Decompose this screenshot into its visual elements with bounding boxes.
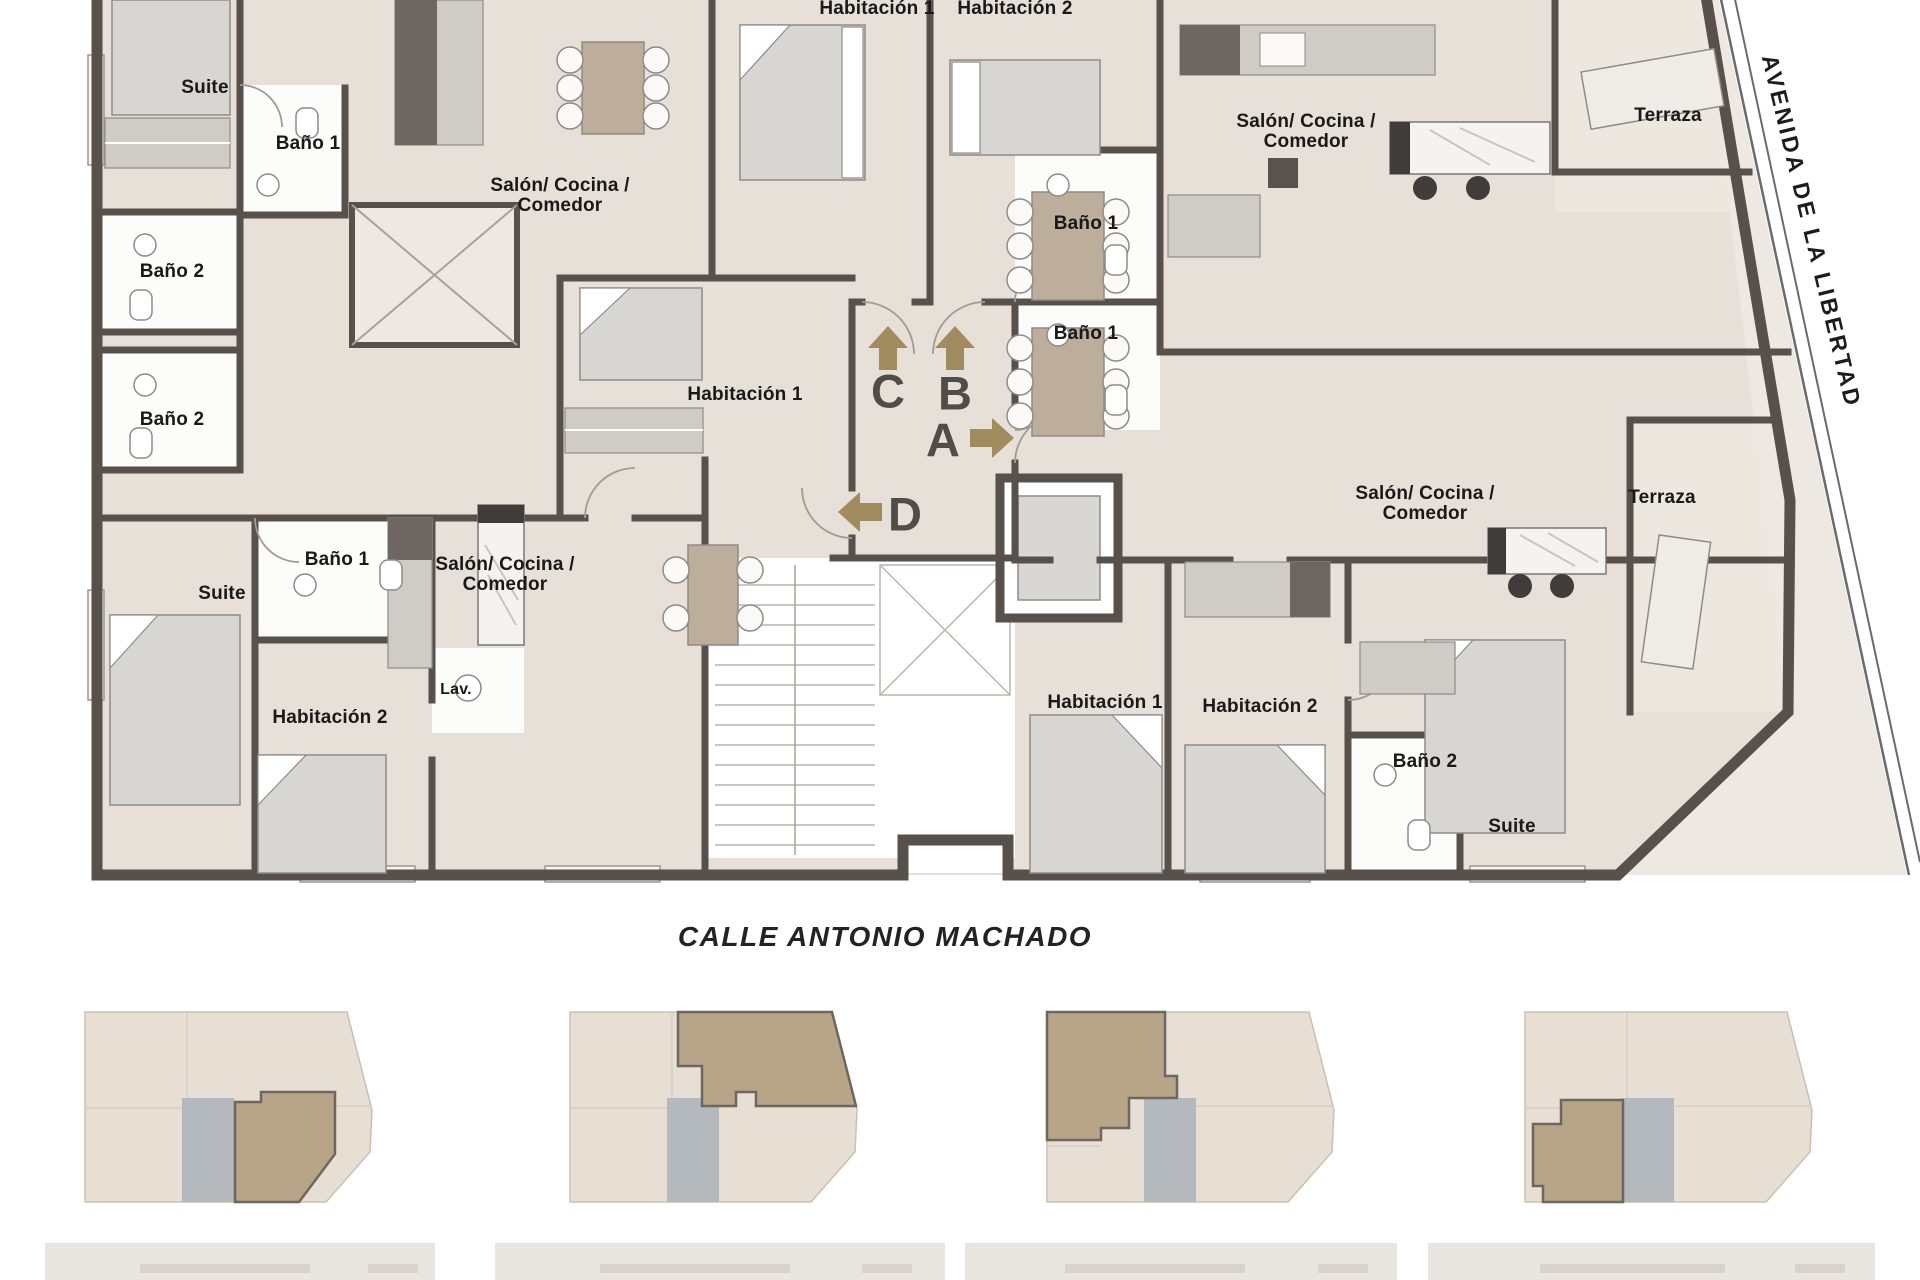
room-label-hab1-a: Habitación 1 <box>1047 692 1162 714</box>
unit-letter-c: C <box>871 364 905 419</box>
room-label-bano2-a: Baño 2 <box>1393 751 1458 773</box>
room-label-suite-d: Suite <box>198 583 245 605</box>
room-label-hab1-top: Habitación 1 <box>819 0 934 20</box>
keyplan-unit-c <box>1047 1012 1334 1202</box>
keyplan-unit-a <box>85 1012 372 1202</box>
room-label-hab2-a: Habitación 2 <box>1202 696 1317 718</box>
salon-line1: Salón/ Cocina / <box>490 176 629 196</box>
room-label-bano1-b-upper: Baño 1 <box>1054 213 1119 235</box>
keyplans <box>45 1012 1875 1280</box>
unit-letter-a: A <box>926 413 960 468</box>
floorplan-page: Habitación 1 Habitación 2 Suite Baño 1 S… <box>0 0 1920 1280</box>
room-label-salon-d: Salón/ Cocina / Comedor <box>435 555 574 595</box>
street-name-calle-antonio-machado: CALLE ANTONIO MACHADO <box>678 921 1092 953</box>
room-label-salon-c: Salón/ Cocina / Comedor <box>490 176 629 216</box>
keyplan-captions <box>45 1243 1875 1280</box>
salon-line2: Comedor <box>1236 132 1375 152</box>
salon-line2: Comedor <box>1355 504 1494 524</box>
room-label-hab2-top: Habitación 2 <box>957 0 1072 20</box>
salon-line1: Salón/ Cocina / <box>435 555 574 575</box>
room-label-hab2-d: Habitación 2 <box>272 707 387 729</box>
room-label-bano2-c: Baño 2 <box>140 261 205 283</box>
plan-drawing <box>0 0 1920 1280</box>
room-label-salon-a: Salón/ Cocina / Comedor <box>1355 484 1494 524</box>
room-label-bano1-d: Baño 1 <box>305 549 370 571</box>
room-label-bano1-b-lower: Baño 1 <box>1054 323 1119 345</box>
keyplan-unit-b <box>570 1012 857 1202</box>
room-label-terraza-b: Terraza <box>1634 105 1702 127</box>
room-label-salon-b: Salón/ Cocina / Comedor <box>1236 112 1375 152</box>
keyplan-unit-d <box>1525 1012 1812 1202</box>
room-label-suite-c: Suite <box>181 77 228 99</box>
salon-line1: Salón/ Cocina / <box>1355 484 1494 504</box>
room-label-terraza-a: Terraza <box>1628 487 1696 509</box>
room-label-suite-a: Suite <box>1488 816 1535 838</box>
dressing-room <box>352 205 517 345</box>
salon-line1: Salón/ Cocina / <box>1236 112 1375 132</box>
room-label-hab1-mid: Habitación 1 <box>687 384 802 406</box>
salon-line2: Comedor <box>435 575 574 595</box>
unit-letter-d: D <box>888 487 922 542</box>
room-label-bano1-c: Baño 1 <box>276 133 341 155</box>
salon-line2: Comedor <box>490 196 629 216</box>
room-label-bano2-d-upper: Baño 2 <box>140 409 205 431</box>
room-label-lav: Lav. <box>440 681 472 699</box>
